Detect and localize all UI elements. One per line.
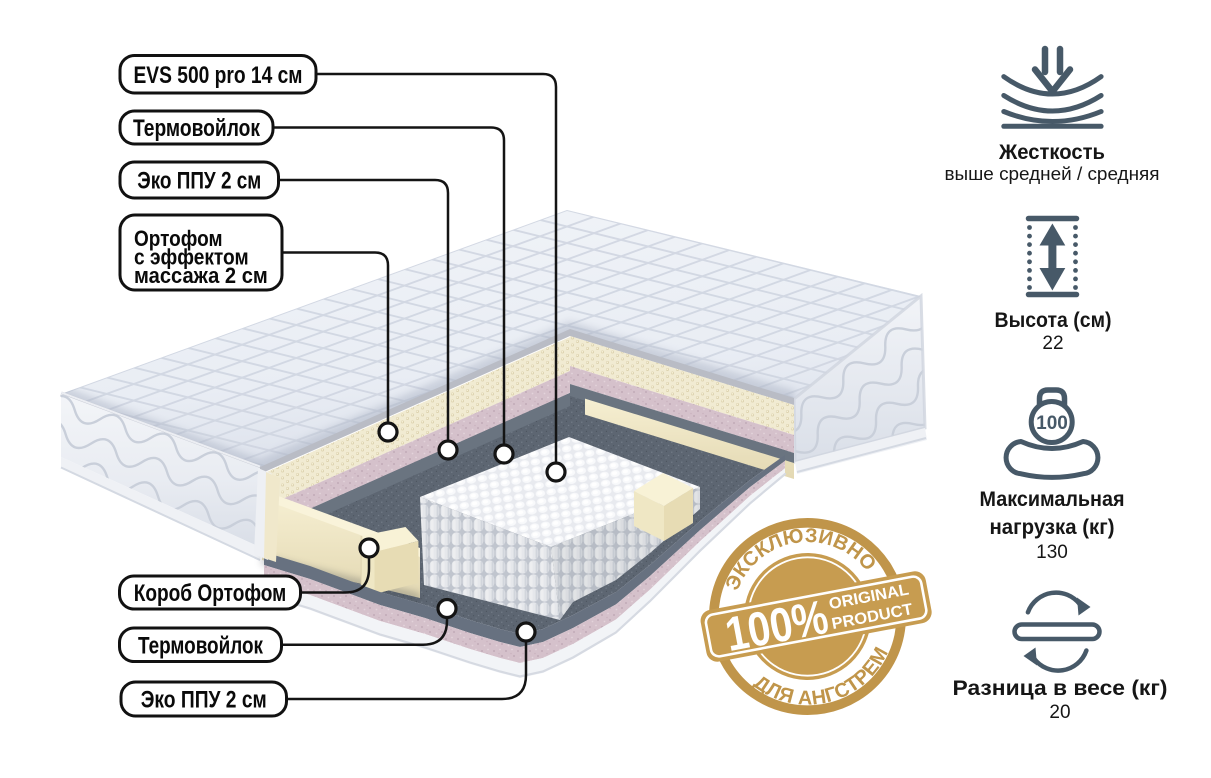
svg-text:Разница в весе (кг): Разница в весе (кг) <box>953 677 1168 700</box>
svg-text:Термовойлок: Термовойлок <box>138 633 264 660</box>
svg-text:массажа 2 см: массажа 2 см <box>134 263 268 288</box>
svg-text:Жесткость: Жесткость <box>998 141 1105 164</box>
svg-text:Эко ППУ 2 см: Эко ППУ 2 см <box>137 168 261 195</box>
svg-text:Высота (см): Высота (см) <box>995 309 1112 332</box>
svg-text:Термовойлок: Термовойлок <box>133 115 261 142</box>
svg-text:EVS 500 pro 14 см: EVS 500 pro 14 см <box>134 62 303 89</box>
svg-text:100: 100 <box>1036 413 1068 434</box>
svg-text:20: 20 <box>1049 702 1070 723</box>
svg-text:130: 130 <box>1036 542 1068 563</box>
svg-text:Эко ППУ 2 см: Эко ППУ 2 см <box>141 687 267 714</box>
svg-text:выше средней / средняя: выше средней / средняя <box>945 164 1160 184</box>
svg-text:Максимальная: Максимальная <box>980 488 1125 511</box>
svg-text:Короб Ортофом: Короб Ортофом <box>134 580 287 607</box>
svg-text:22: 22 <box>1042 333 1063 354</box>
svg-text:нагрузка (кг): нагрузка (кг) <box>990 516 1115 539</box>
